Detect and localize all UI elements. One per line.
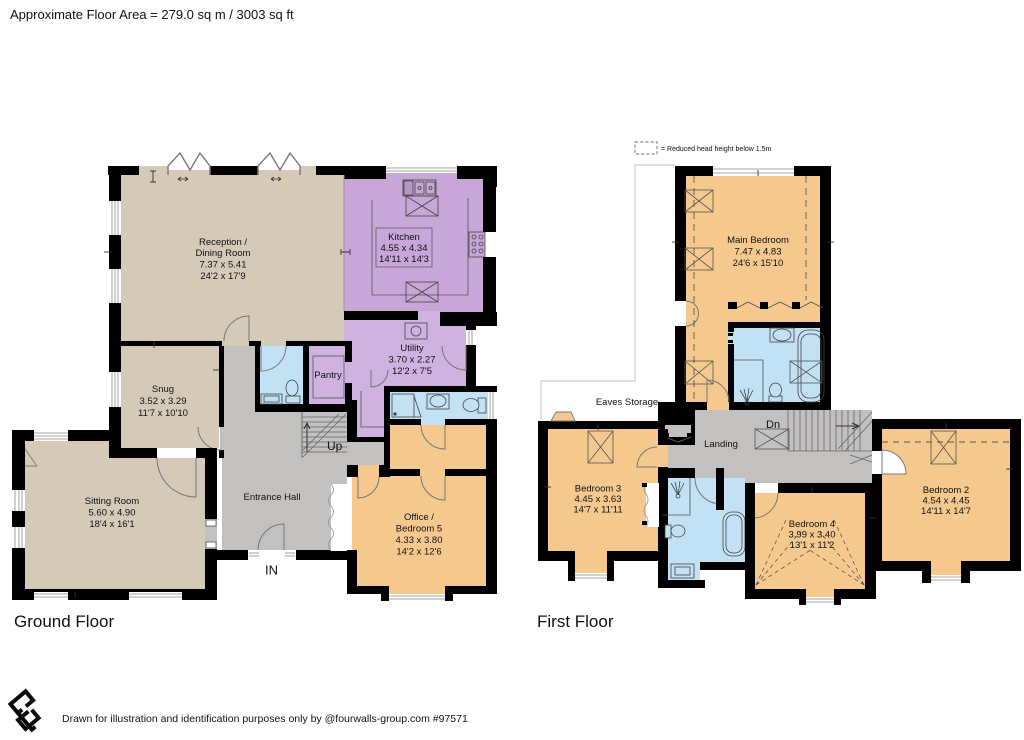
svg-text:24'6 x 15'10: 24'6 x 15'10: [733, 258, 784, 269]
svg-text:14'2 x 12'6: 14'2 x 12'6: [396, 547, 441, 558]
svg-text:Dining Room: Dining Room: [196, 248, 251, 259]
svg-text:Dn: Dn: [766, 419, 780, 431]
svg-text:3.99 x 3.40: 3.99 x 3.40: [788, 530, 835, 541]
svg-text:Sitting Room: Sitting Room: [85, 496, 139, 507]
svg-text:Main Bedroom: Main Bedroom: [727, 235, 789, 246]
svg-text:Bedroom 3: Bedroom 3: [575, 484, 621, 495]
svg-text:Ground Floor: Ground Floor: [14, 612, 114, 631]
svg-text:13'1 x 11'2: 13'1 x 11'2: [790, 540, 835, 551]
svg-text:3.70 x 2.27: 3.70 x 2.27: [388, 355, 435, 366]
svg-text:= Reduced head height below 1.: = Reduced head height below 1.5m: [661, 146, 771, 153]
svg-text:Up: Up: [327, 439, 343, 453]
svg-text:Office /: Office /: [404, 512, 434, 523]
svg-text:14'11 x 14'7: 14'11 x 14'7: [921, 506, 971, 517]
svg-text:Kitchen: Kitchen: [388, 232, 420, 243]
svg-text:IN: IN: [265, 563, 278, 578]
svg-text:First Floor: First Floor: [537, 612, 614, 631]
svg-text:Drawn for illustration and ide: Drawn for illustration and identificatio…: [62, 713, 468, 725]
svg-text:5.60 x 4.90: 5.60 x 4.90: [88, 508, 135, 519]
svg-text:3.52 x 3.29: 3.52 x 3.29: [139, 396, 186, 407]
svg-text:Reception /: Reception /: [199, 237, 247, 248]
svg-text:14'11 x 14'3: 14'11 x 14'3: [379, 254, 429, 265]
svg-text:Bedroom 4: Bedroom 4: [789, 519, 835, 530]
svg-text:Bedroom 5: Bedroom 5: [396, 524, 442, 535]
svg-text:14'7 x 11'11: 14'7 x 11'11: [573, 505, 622, 516]
svg-text:7.47 x 4.83: 7.47 x 4.83: [734, 247, 781, 258]
svg-text:12'2 x 7'5: 12'2 x 7'5: [392, 366, 432, 377]
svg-text:Landing: Landing: [704, 439, 738, 450]
svg-text:Eaves Storage: Eaves Storage: [596, 397, 658, 408]
svg-text:Approximate Floor Area = 279.0: Approximate Floor Area = 279.0 sq m / 30…: [10, 7, 294, 22]
svg-text:7.37 x 5.41: 7.37 x 5.41: [199, 260, 246, 271]
svg-text:24'2 x 17'9: 24'2 x 17'9: [200, 271, 245, 282]
svg-text:Pantry: Pantry: [314, 370, 342, 381]
svg-text:4.33 x 3.80: 4.33 x 3.80: [395, 535, 442, 546]
svg-text:11'7 x 10'10: 11'7 x 10'10: [138, 408, 188, 419]
svg-text:4.54 x 4.45: 4.54 x 4.45: [922, 496, 969, 507]
svg-text:Entrance Hall: Entrance Hall: [243, 492, 300, 503]
svg-text:Bedroom 2: Bedroom 2: [923, 485, 969, 496]
svg-text:18'4 x 16'1: 18'4 x 16'1: [89, 519, 134, 530]
svg-text:4.55 x 4.34: 4.55 x 4.34: [380, 243, 427, 254]
svg-text:4.45 x 3.63: 4.45 x 3.63: [574, 494, 621, 505]
svg-text:Utility: Utility: [400, 343, 423, 354]
svg-text:Snug: Snug: [152, 384, 174, 395]
